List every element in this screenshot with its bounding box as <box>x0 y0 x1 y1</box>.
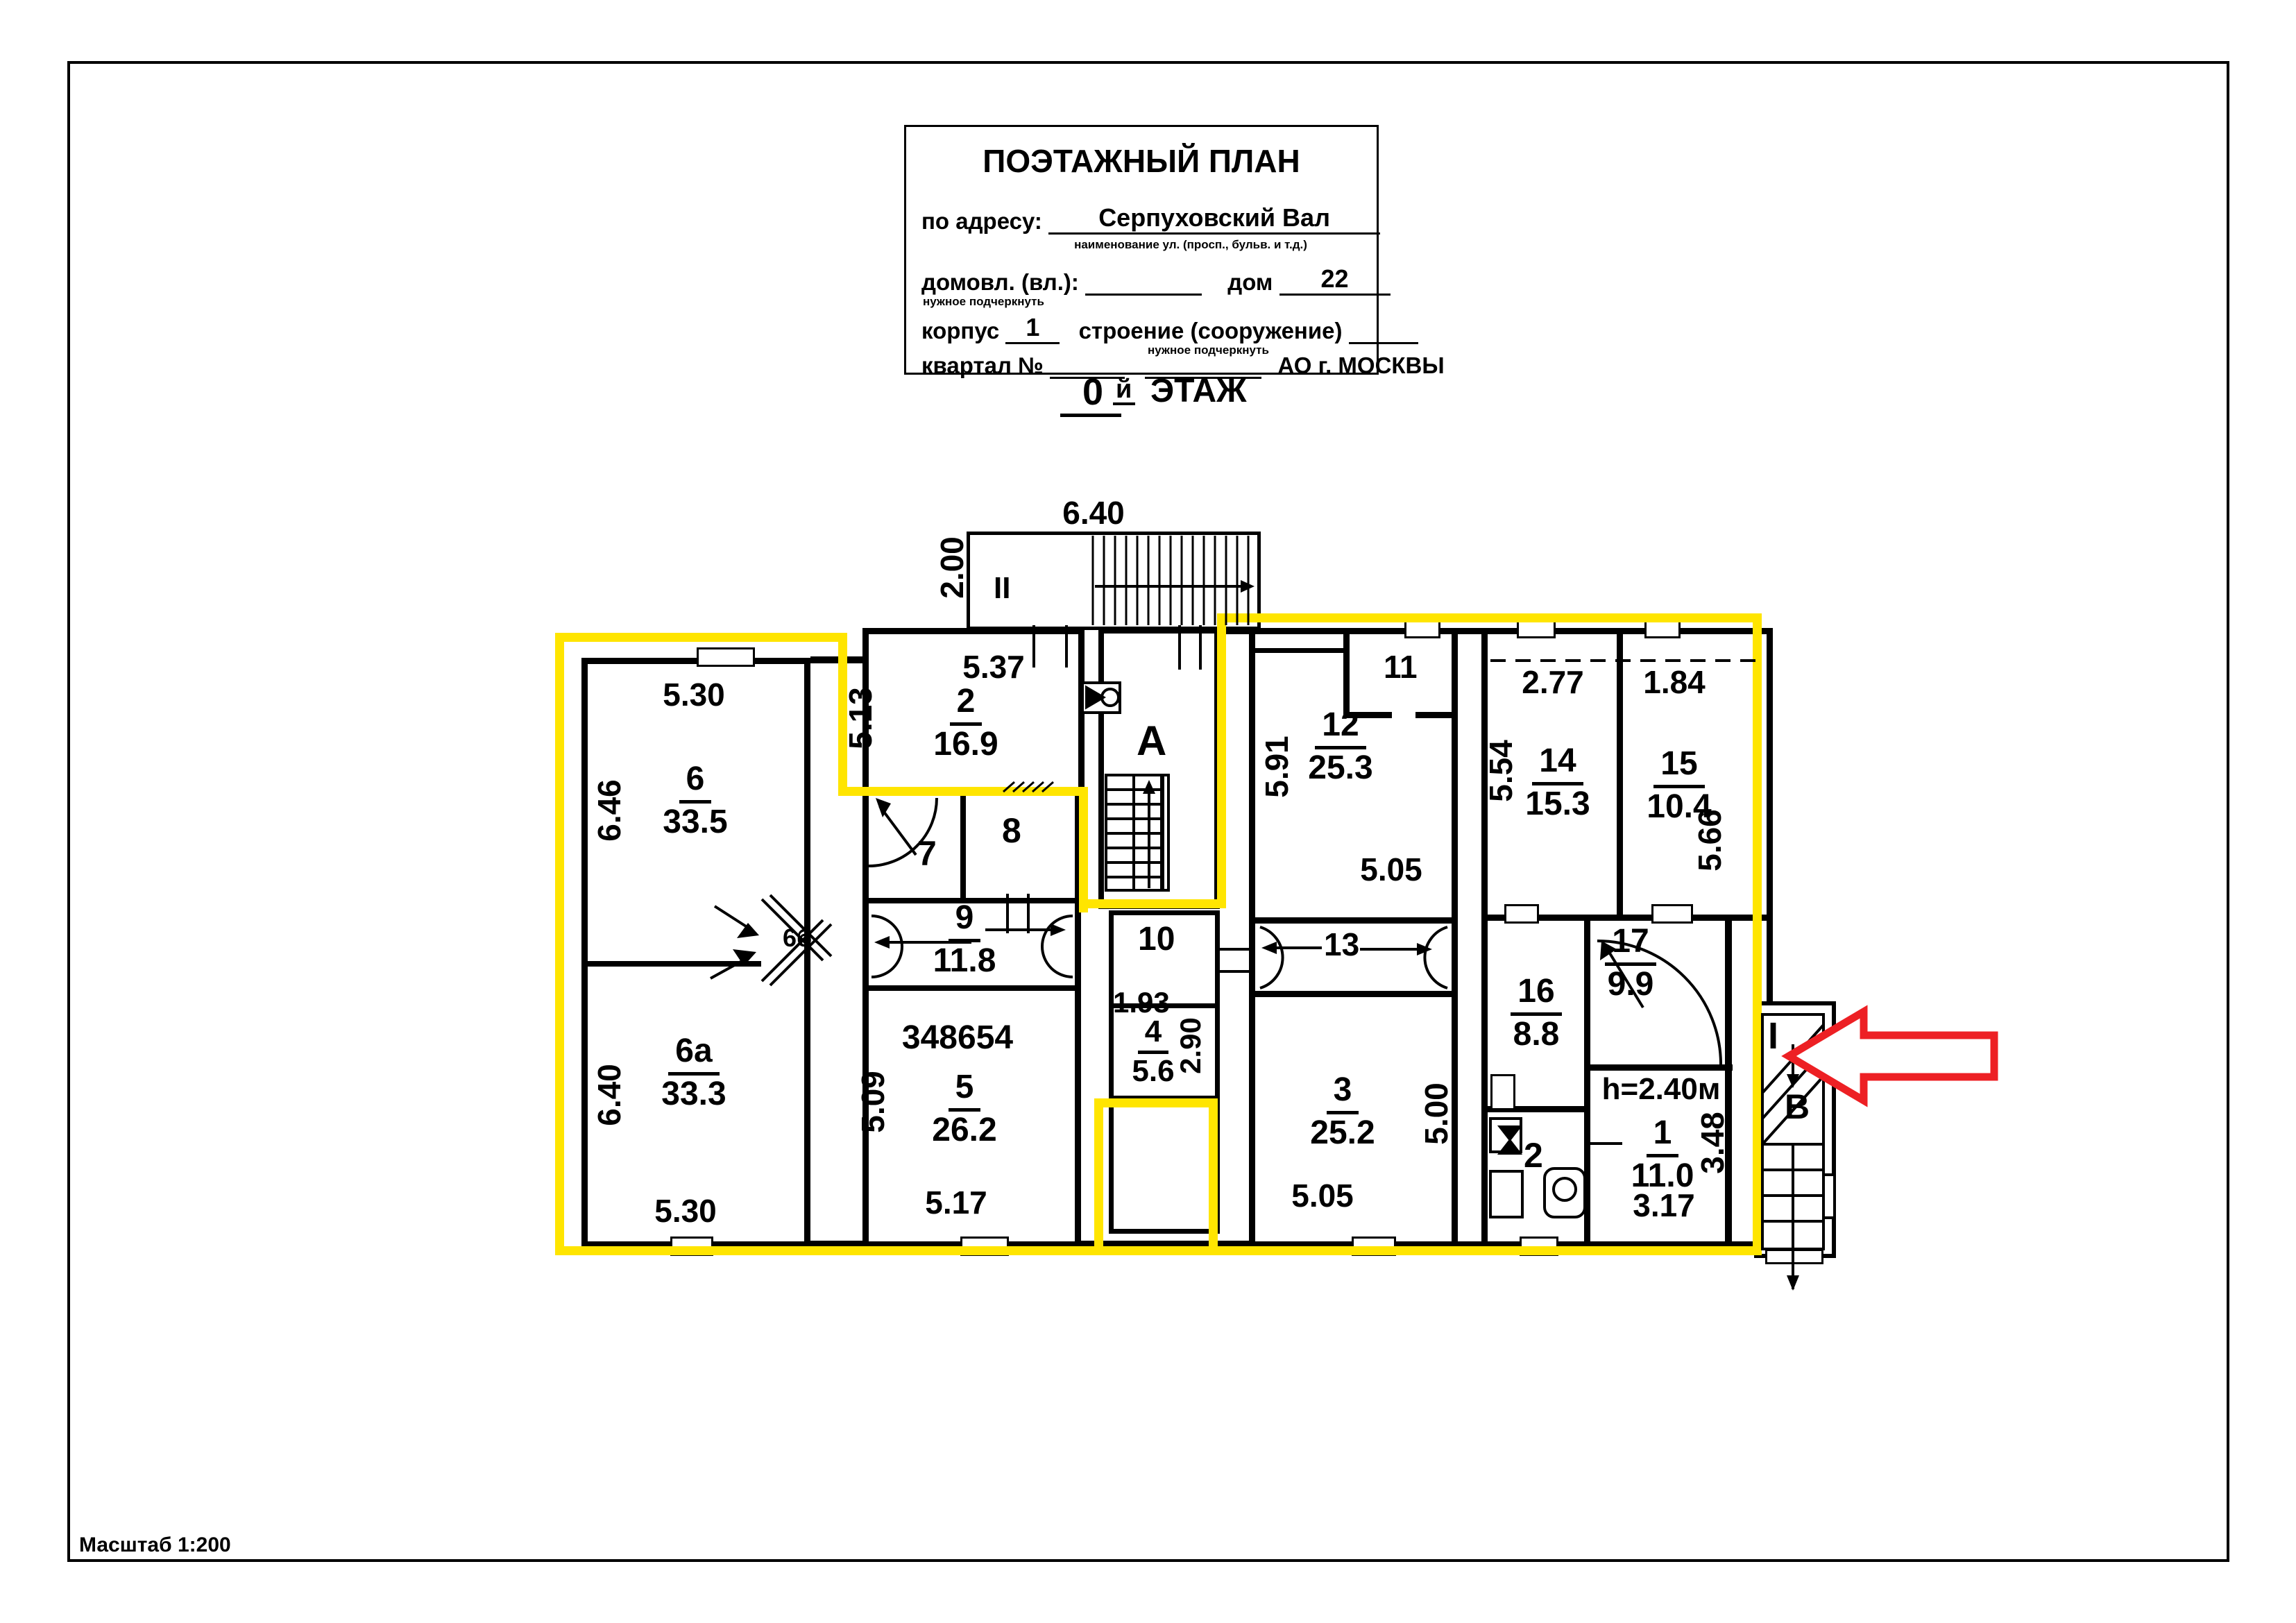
dim-room2-left: 5.13 <box>844 677 876 760</box>
room2-label: 216.9 <box>890 683 1042 763</box>
door-6b-label: 6б <box>783 926 812 951</box>
stair-hall-A-label: A <box>1137 720 1166 762</box>
floor-plan-sheet: { "title_block": { "title": "ПОЭТАЖНЫЙ П… <box>0 0 2296 1623</box>
room6a-label: 6а33.3 <box>618 1033 770 1113</box>
dim-room3-right: 5.00 <box>1420 1072 1452 1155</box>
dim-vestibule-depth: 2.00 <box>936 526 968 609</box>
door-arc-corridor13-right-icon <box>1360 927 1447 988</box>
dim-room6a-bottom: 5.30 <box>654 1195 717 1227</box>
floor-number: 0 <box>1069 373 1117 411</box>
scale-note: Масштаб 1:200 <box>79 1535 231 1556</box>
vestibule-II-label: II <box>994 573 1010 604</box>
dim-room2-top: 5.37 <box>962 651 1025 683</box>
dim-room15-right: 5.66 <box>1694 799 1726 882</box>
dim-room4-width: 1.93 <box>1113 988 1170 1017</box>
room11-label: 11 <box>1384 651 1418 683</box>
room10-label: 10 <box>1138 923 1175 956</box>
dim-room12-left: 5.91 <box>1261 725 1293 808</box>
room7-label: 7 <box>917 836 937 871</box>
wc-shower-box <box>1490 1171 1522 1217</box>
room15-label: 1510.4 <box>1603 745 1755 826</box>
dim-room12-bottom: 5.05 <box>1360 853 1422 885</box>
dim-room5-left: 5.09 <box>857 1060 889 1144</box>
door-arc-corridor13-left-icon <box>1260 927 1322 988</box>
vestibule-stairs-hatch-icon <box>1093 536 1248 625</box>
room5-label: 526.2 <box>888 1069 1041 1149</box>
wall-hatch-room2 <box>1003 782 1053 792</box>
stair-entry-I-label: I <box>1768 1017 1778 1055</box>
dim-room14-top: 2.77 <box>1522 666 1584 698</box>
dim-room4-height: 2.90 <box>1176 1004 1205 1087</box>
dim-room15-top: 1.84 <box>1643 666 1706 698</box>
dim-room6-top: 5.30 <box>663 679 725 711</box>
floor-suffix: й <box>1116 376 1132 402</box>
floor-suffix-underline <box>1113 402 1135 405</box>
door-ticks <box>1007 625 1622 1144</box>
inventory-number: 348654 <box>902 1021 1013 1055</box>
room17-label: 179.9 <box>1554 923 1707 1003</box>
dim-room1-right: 3.48 <box>1697 1101 1728 1184</box>
room3-label: 325.2 <box>1266 1071 1419 1152</box>
room6-label: 633.5 <box>619 760 772 841</box>
dim-room5-bottom: 5.17 <box>925 1187 987 1218</box>
dim-room3-bottom: 5.05 <box>1291 1180 1354 1212</box>
room9-label: 911.8 <box>888 899 1041 980</box>
room-wc-label: 2 <box>1524 1138 1543 1173</box>
ceiling-height-label: h=2.40м <box>1602 1074 1721 1105</box>
floor-word: ЭТАЖ <box>1150 375 1247 408</box>
dim-room1-bottom: 3.17 <box>1633 1189 1695 1221</box>
plan-linework <box>0 0 2296 1623</box>
room13-label: 13 <box>1324 928 1359 960</box>
stairwell-B-label: В <box>1785 1089 1810 1124</box>
dim-vestibule-width: 6.40 <box>1062 497 1125 529</box>
floor-number-underline <box>1060 414 1121 417</box>
room8-label: 8 <box>1002 813 1021 848</box>
